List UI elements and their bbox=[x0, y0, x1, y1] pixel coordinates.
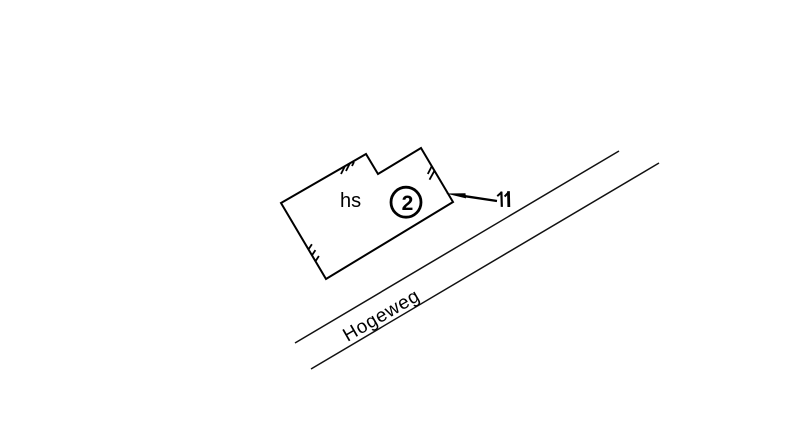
svg-text:2: 2 bbox=[402, 192, 414, 215]
svg-text:hs: hs bbox=[340, 190, 361, 212]
